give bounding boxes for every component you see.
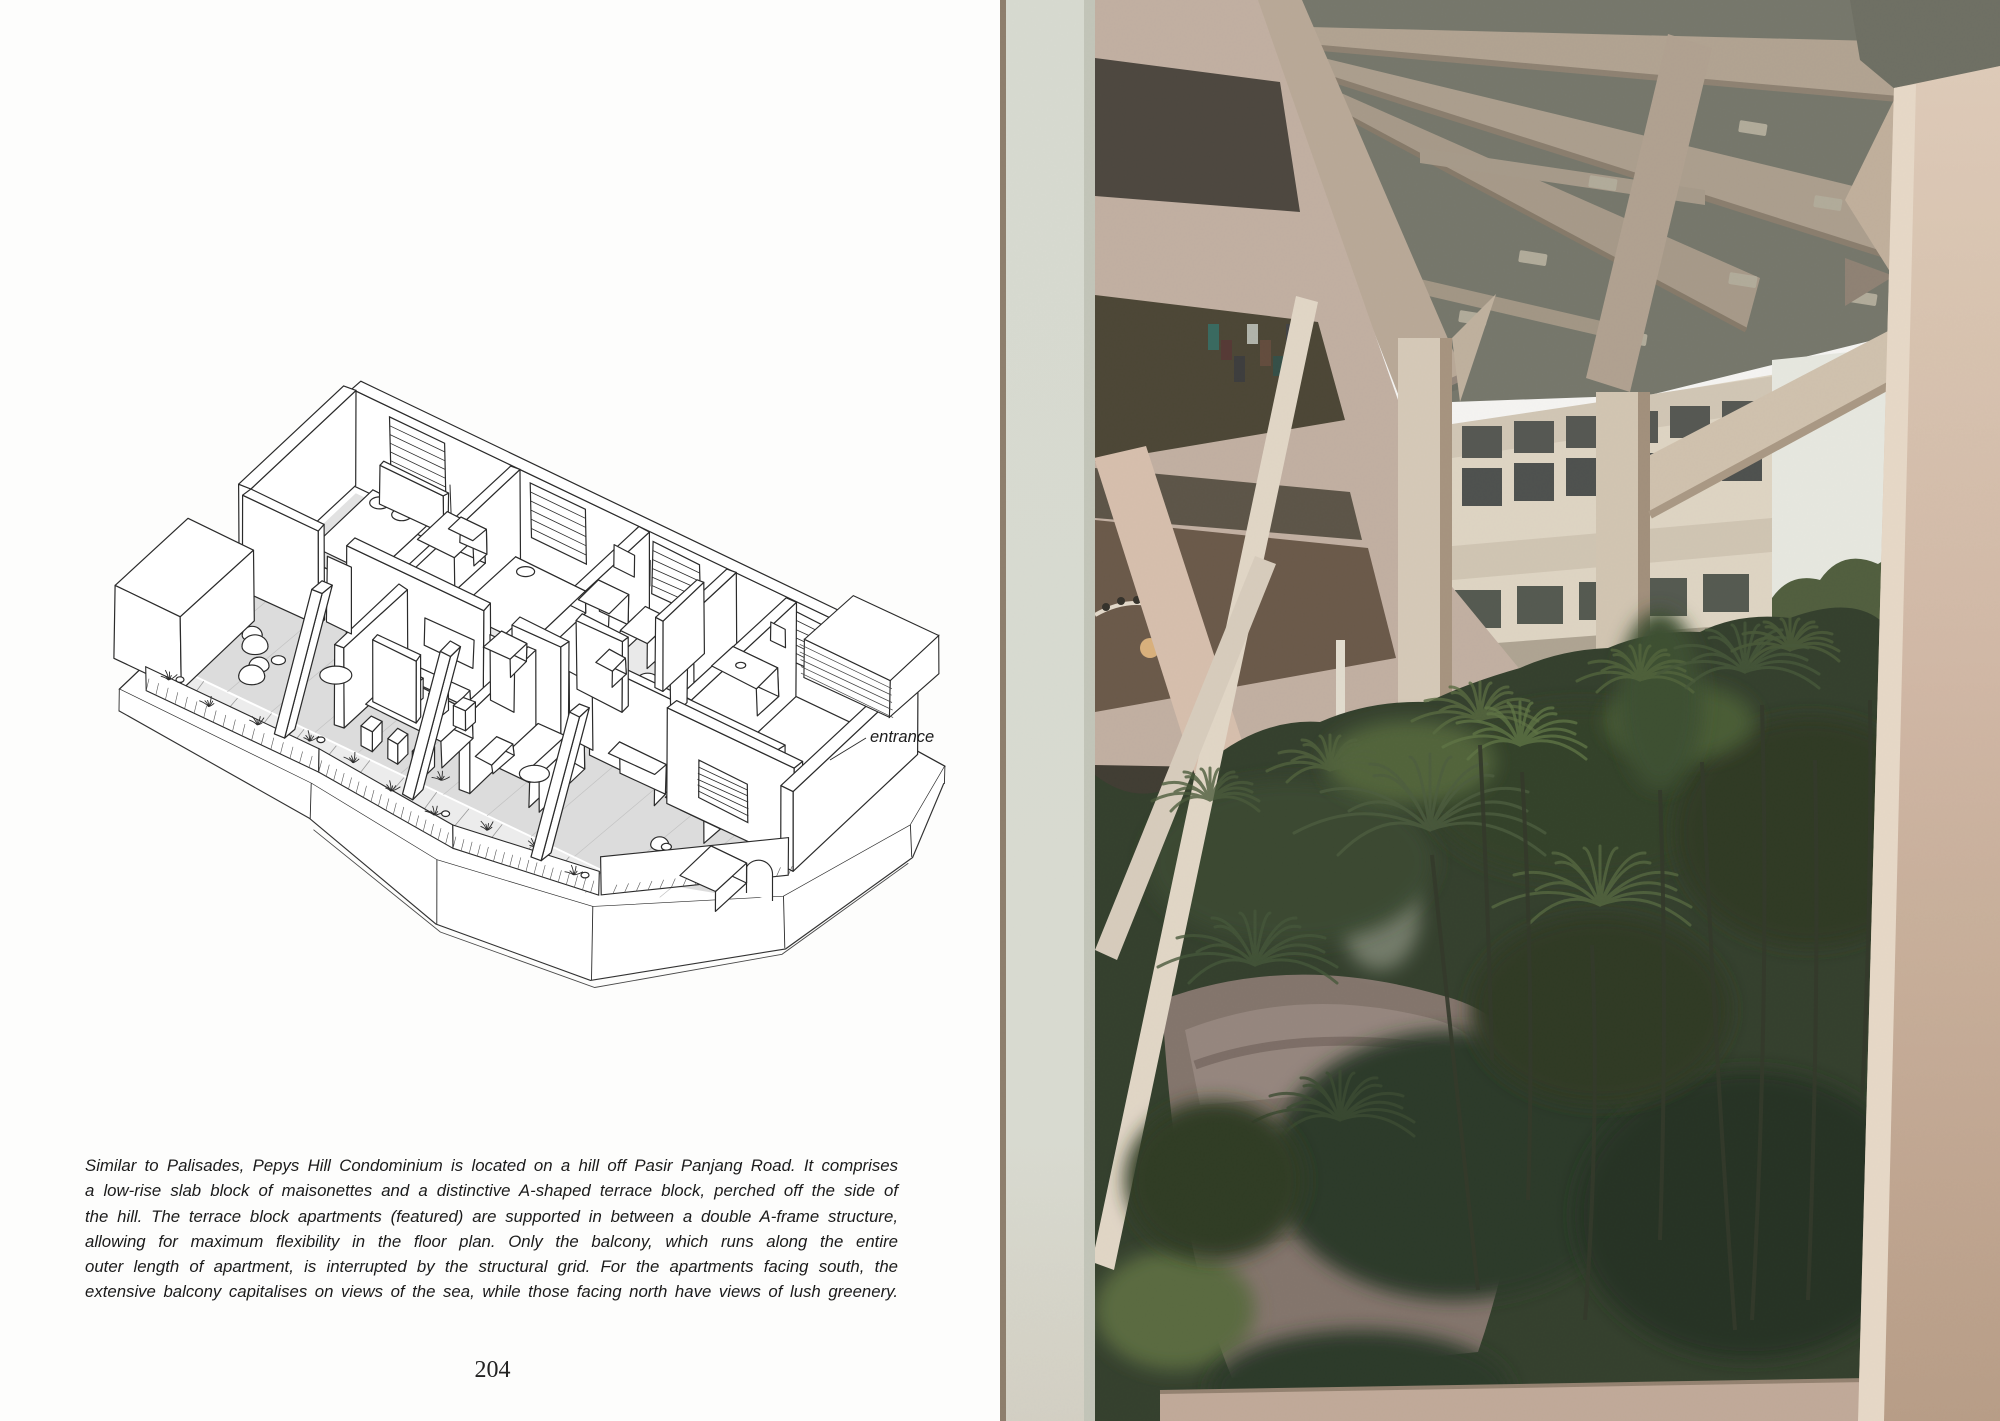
svg-text:entrance: entrance xyxy=(870,728,934,746)
